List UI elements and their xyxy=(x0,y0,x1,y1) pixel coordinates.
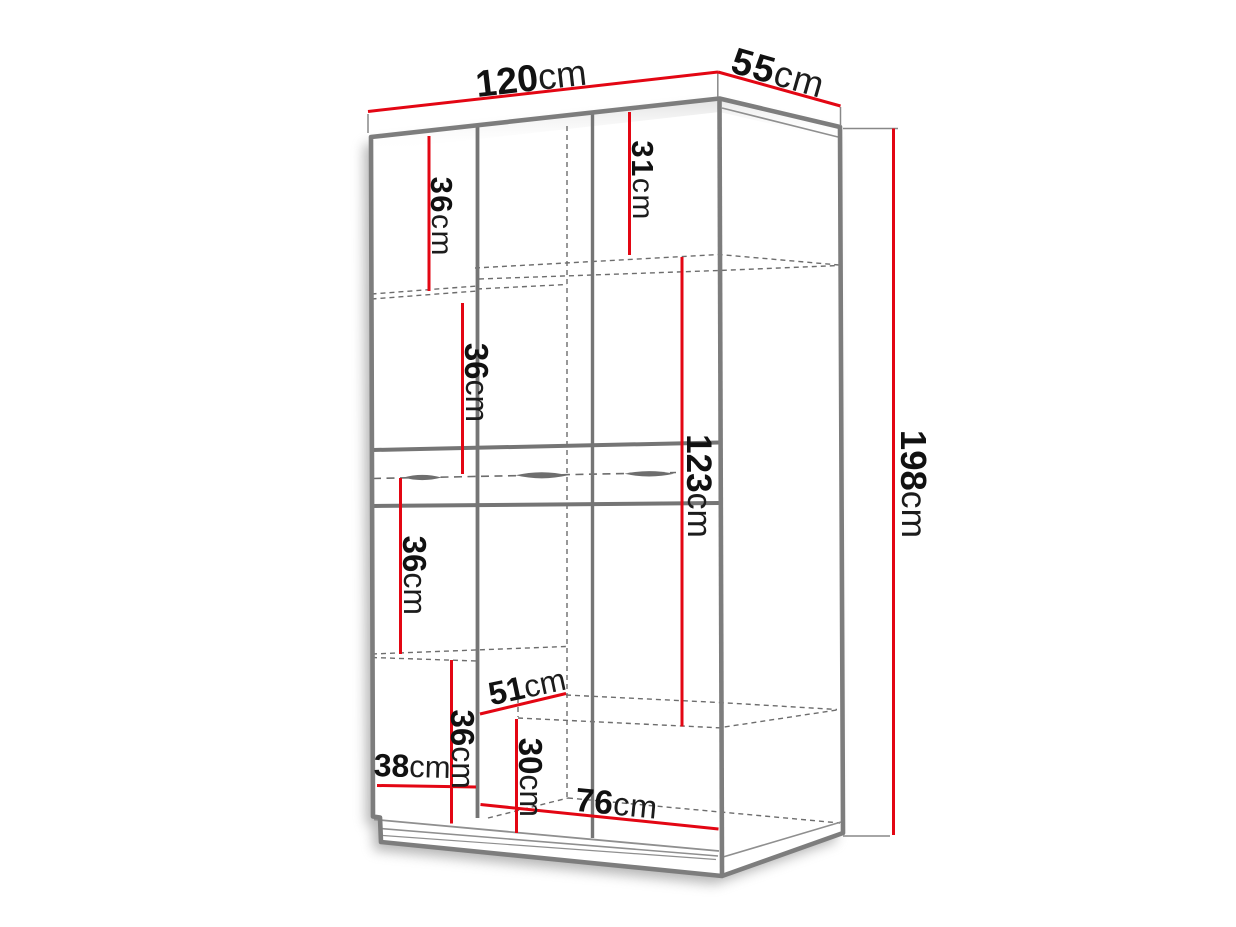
svg-text:198cm: 198cm xyxy=(894,430,935,538)
svg-text:76cm: 76cm xyxy=(574,781,660,826)
svg-text:30cm: 30cm xyxy=(513,738,550,817)
svg-text:123cm: 123cm xyxy=(680,434,719,538)
svg-text:36cm: 36cm xyxy=(425,177,460,257)
svg-text:38cm: 38cm xyxy=(373,747,451,785)
svg-text:31cm: 31cm xyxy=(625,140,660,220)
svg-text:36cm: 36cm xyxy=(397,536,434,615)
svg-text:36cm: 36cm xyxy=(459,343,496,422)
